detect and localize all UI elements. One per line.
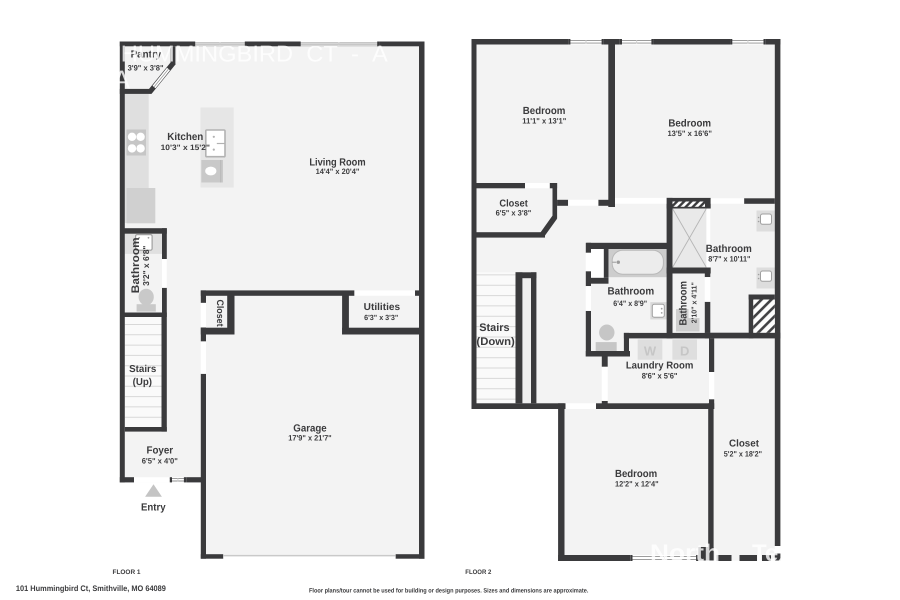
svg-text:6'5" x 3'8": 6'5" x 3'8" bbox=[496, 208, 532, 217]
svg-text:101 Hummingbird Ct, Smithville: 101 Hummingbird Ct, Smithville, MO 64089 bbox=[16, 584, 167, 593]
svg-text:10'3" x 15'2": 10'3" x 15'2" bbox=[161, 143, 211, 152]
svg-text:Bedroom: Bedroom bbox=[668, 118, 711, 129]
svg-text:12'2" x 12'4": 12'2" x 12'4" bbox=[615, 480, 659, 489]
svg-text:A: A bbox=[113, 65, 131, 95]
svg-text:FLOOR 2: FLOOR 2 bbox=[465, 569, 491, 576]
svg-text:2'10" x 4'11": 2'10" x 4'11" bbox=[689, 282, 698, 323]
svg-text:13'5" x 16'6": 13'5" x 16'6" bbox=[667, 129, 712, 138]
svg-text:Closet: Closet bbox=[729, 438, 760, 449]
svg-text:3'2" x 6'8": 3'2" x 6'8" bbox=[141, 246, 151, 286]
svg-text:HUMMINGBIRD CT - A: HUMMINGBIRD CT - A bbox=[121, 41, 389, 67]
svg-text:Laundry Room: Laundry Room bbox=[626, 360, 694, 371]
svg-text:Bathroom: Bathroom bbox=[607, 286, 654, 298]
svg-text:D: D bbox=[680, 343, 689, 358]
svg-text:Entry: Entry bbox=[141, 502, 166, 513]
svg-text:Closet: Closet bbox=[214, 299, 225, 327]
svg-text:11'1" x 13'1": 11'1" x 13'1" bbox=[522, 116, 566, 125]
svg-text:Bathroom: Bathroom bbox=[678, 281, 690, 326]
svg-text:6'5" x 4'0": 6'5" x 4'0" bbox=[142, 456, 178, 465]
svg-text:Tex: Tex bbox=[752, 540, 792, 567]
svg-text:8'7" x 10'11": 8'7" x 10'11" bbox=[708, 255, 750, 264]
svg-text:(Up): (Up) bbox=[133, 377, 152, 388]
svg-text:Bathroom: Bathroom bbox=[706, 243, 752, 255]
svg-text:8'6" x 5'6": 8'6" x 5'6" bbox=[642, 372, 678, 381]
svg-text:14'4" x 20'4": 14'4" x 20'4" bbox=[316, 167, 360, 176]
svg-text:(Down): (Down) bbox=[476, 336, 515, 348]
svg-text:17'9" x 21'7": 17'9" x 21'7" bbox=[288, 434, 332, 443]
svg-text:Floor plans/tour cannot be use: Floor plans/tour cannot be used for buil… bbox=[309, 588, 589, 595]
svg-text:W: W bbox=[644, 343, 657, 358]
svg-text:5'2" x 18'2": 5'2" x 18'2" bbox=[724, 450, 763, 459]
svg-text:Stairs: Stairs bbox=[129, 364, 157, 375]
svg-text:FLOOR 1: FLOOR 1 bbox=[113, 569, 141, 576]
svg-text:North: North bbox=[650, 540, 720, 567]
svg-text:Utilities: Utilities bbox=[364, 302, 401, 313]
svg-text:Foyer: Foyer bbox=[147, 446, 174, 457]
svg-text:6'3" x 3'3": 6'3" x 3'3" bbox=[364, 313, 399, 322]
svg-text:6'4" x 8'9": 6'4" x 8'9" bbox=[613, 299, 647, 308]
svg-text:Stairs: Stairs bbox=[479, 322, 509, 334]
svg-text:Kitchen: Kitchen bbox=[167, 132, 203, 143]
